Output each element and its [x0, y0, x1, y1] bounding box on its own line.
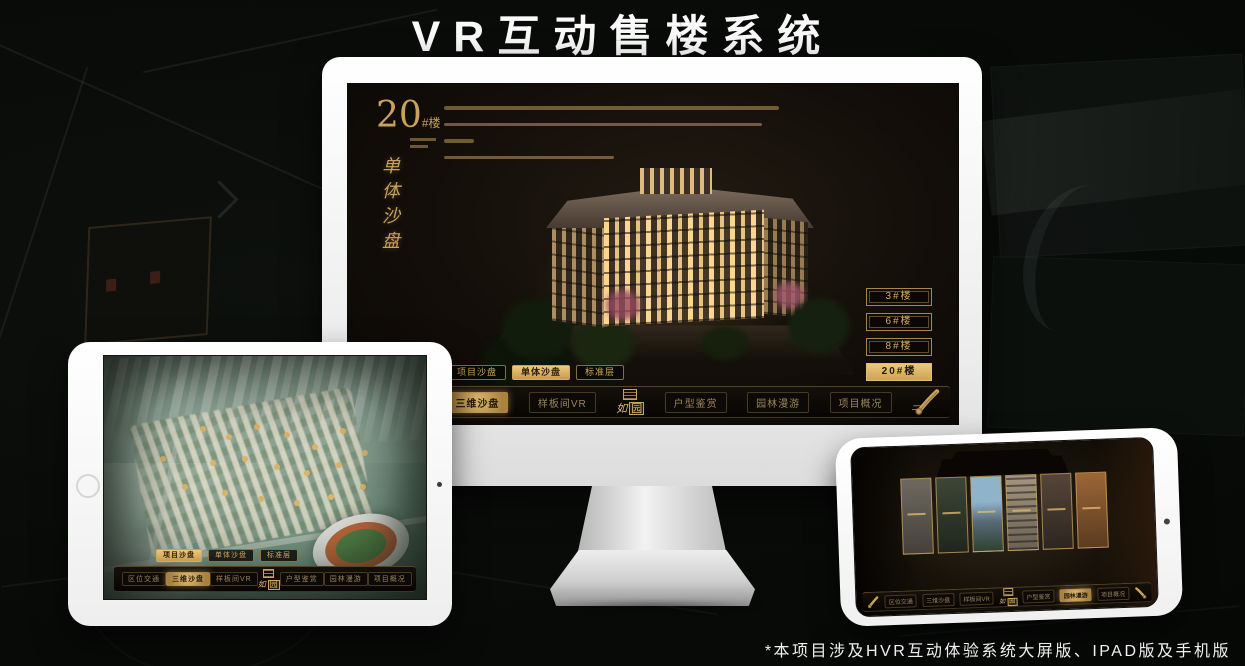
gallery-panel[interactable]	[1040, 473, 1074, 550]
subtab-single-sandbox[interactable]: 单体沙盘	[208, 549, 254, 562]
gallery-panel[interactable]	[900, 478, 934, 555]
subtab-project-sandbox[interactable]: 项目沙盘	[156, 549, 202, 562]
building-number: 20	[376, 95, 422, 136]
monitor-stand	[577, 486, 727, 556]
brand-logo: 如 园	[616, 389, 644, 415]
scroll-menu-icon[interactable]	[912, 387, 942, 417]
nav-item-location[interactable]: 区位交通	[122, 572, 166, 586]
heading-subtext-line	[410, 138, 436, 141]
nav-item-3d-sandbox[interactable]: 三维沙盘	[166, 572, 210, 586]
tablet-screen: 项目沙盘 单体沙盘 标准层 区位交通 三维沙盘 样板间VR 如	[103, 355, 427, 600]
building-button-6[interactable]: 6#楼	[866, 313, 932, 331]
brand-logo: 如 园	[258, 569, 280, 590]
nav-item-showroom-vr[interactable]: 样板间VR	[959, 591, 994, 605]
nav-item-project-overview[interactable]: 项目概况	[368, 572, 412, 586]
page-title: VR互动售楼系统	[0, 2, 1245, 64]
sandbox-subtabs: 项目沙盘 单体沙盘 标准层	[448, 365, 624, 380]
nav-item-floorplans[interactable]: 户型鉴赏	[280, 572, 324, 586]
nav-item-3d-sandbox[interactable]: 三维沙盘	[446, 392, 508, 413]
nav-item-project-overview[interactable]: 项目概况	[830, 392, 892, 413]
building-button-20[interactable]: 20#楼	[866, 363, 932, 381]
scroll-menu-icon[interactable]	[1134, 586, 1147, 599]
monitor-shadow	[538, 601, 768, 611]
seal-icon	[623, 389, 637, 400]
background-chevron	[200, 180, 238, 218]
subtab-standard-floor[interactable]: 标准层	[260, 549, 298, 562]
heading-vertical-title: 单体沙盘	[376, 156, 402, 256]
phone-device: 区位交通 三维沙盘 样板间VR 如 园 户型鉴赏 园林漫游 项目概况	[835, 427, 1183, 627]
tablet-device: 项目沙盘 单体沙盘 标准层 区位交通 三维沙盘 样板间VR 如	[68, 342, 452, 626]
nav-item-floorplans[interactable]: 户型鉴赏	[665, 392, 727, 413]
nav-item-floorplans[interactable]: 户型鉴赏	[1022, 589, 1054, 603]
nav-item-garden-tour[interactable]: 园林漫游	[1059, 588, 1091, 602]
building-button-8[interactable]: 8#楼	[866, 338, 932, 356]
nav-item-3d-sandbox[interactable]: 三维沙盘	[922, 592, 954, 606]
subtab-project-sandbox[interactable]: 项目沙盘	[448, 365, 506, 380]
nav-item-project-overview[interactable]: 项目概况	[1097, 586, 1129, 600]
subtab-single-sandbox[interactable]: 单体沙盘	[512, 365, 570, 380]
gallery-panel[interactable]	[970, 475, 1004, 552]
home-button[interactable]	[76, 474, 100, 498]
brand-logo: 如 园	[999, 588, 1018, 607]
page: VR互动售楼系统 20#楼 单体沙盘	[0, 0, 1245, 666]
seal-icon	[263, 569, 274, 578]
gallery-panel[interactable]	[1005, 474, 1039, 551]
building-button-3[interactable]: 3#楼	[866, 288, 932, 306]
sandbox-subtabs: 项目沙盘 单体沙盘 标准层	[156, 549, 416, 562]
heading-subtext-line	[410, 145, 428, 148]
nav-item-showroom-vr[interactable]: 样板间VR	[529, 392, 596, 413]
building-render	[488, 150, 848, 400]
nav-item-location[interactable]: 区位交通	[885, 594, 917, 608]
phone-screen: 区位交通 三维沙盘 样板间VR 如 园 户型鉴赏 园林漫游 项目概况	[850, 437, 1159, 617]
subtab-standard-floor[interactable]: 标准层	[576, 365, 624, 380]
camera-icon	[437, 482, 442, 487]
scroll-menu-icon[interactable]	[866, 595, 879, 608]
gallery-panel[interactable]	[935, 476, 969, 553]
nav-item-garden-tour[interactable]: 园林漫游	[747, 392, 809, 413]
gallery-panel[interactable]	[1075, 472, 1109, 549]
monitor-stand-base	[550, 550, 755, 606]
screen-heading: 20#楼 单体沙盘	[376, 98, 441, 256]
tablet-ui-overlay: 项目沙盘 单体沙盘 标准层 区位交通 三维沙盘 样板间VR 如	[114, 549, 416, 592]
nav-item-garden-tour[interactable]: 园林漫游	[324, 572, 368, 586]
footnote: *本项目涉及HVR互动体验系统大屏版、IPAD版及手机版	[765, 637, 1231, 661]
nav-item-showroom-vr[interactable]: 样板间VR	[210, 572, 258, 586]
scene-gallery	[900, 472, 1109, 555]
main-navbar: 区位交通 三维沙盘 样板间VR 如 园 户型鉴赏 园林漫游 项目概况	[114, 566, 416, 592]
seal-icon	[1003, 588, 1013, 596]
building-selector: 3#楼 6#楼 8#楼 20#楼	[866, 288, 932, 381]
camera-icon	[1164, 518, 1170, 524]
background-plaque	[84, 216, 212, 346]
